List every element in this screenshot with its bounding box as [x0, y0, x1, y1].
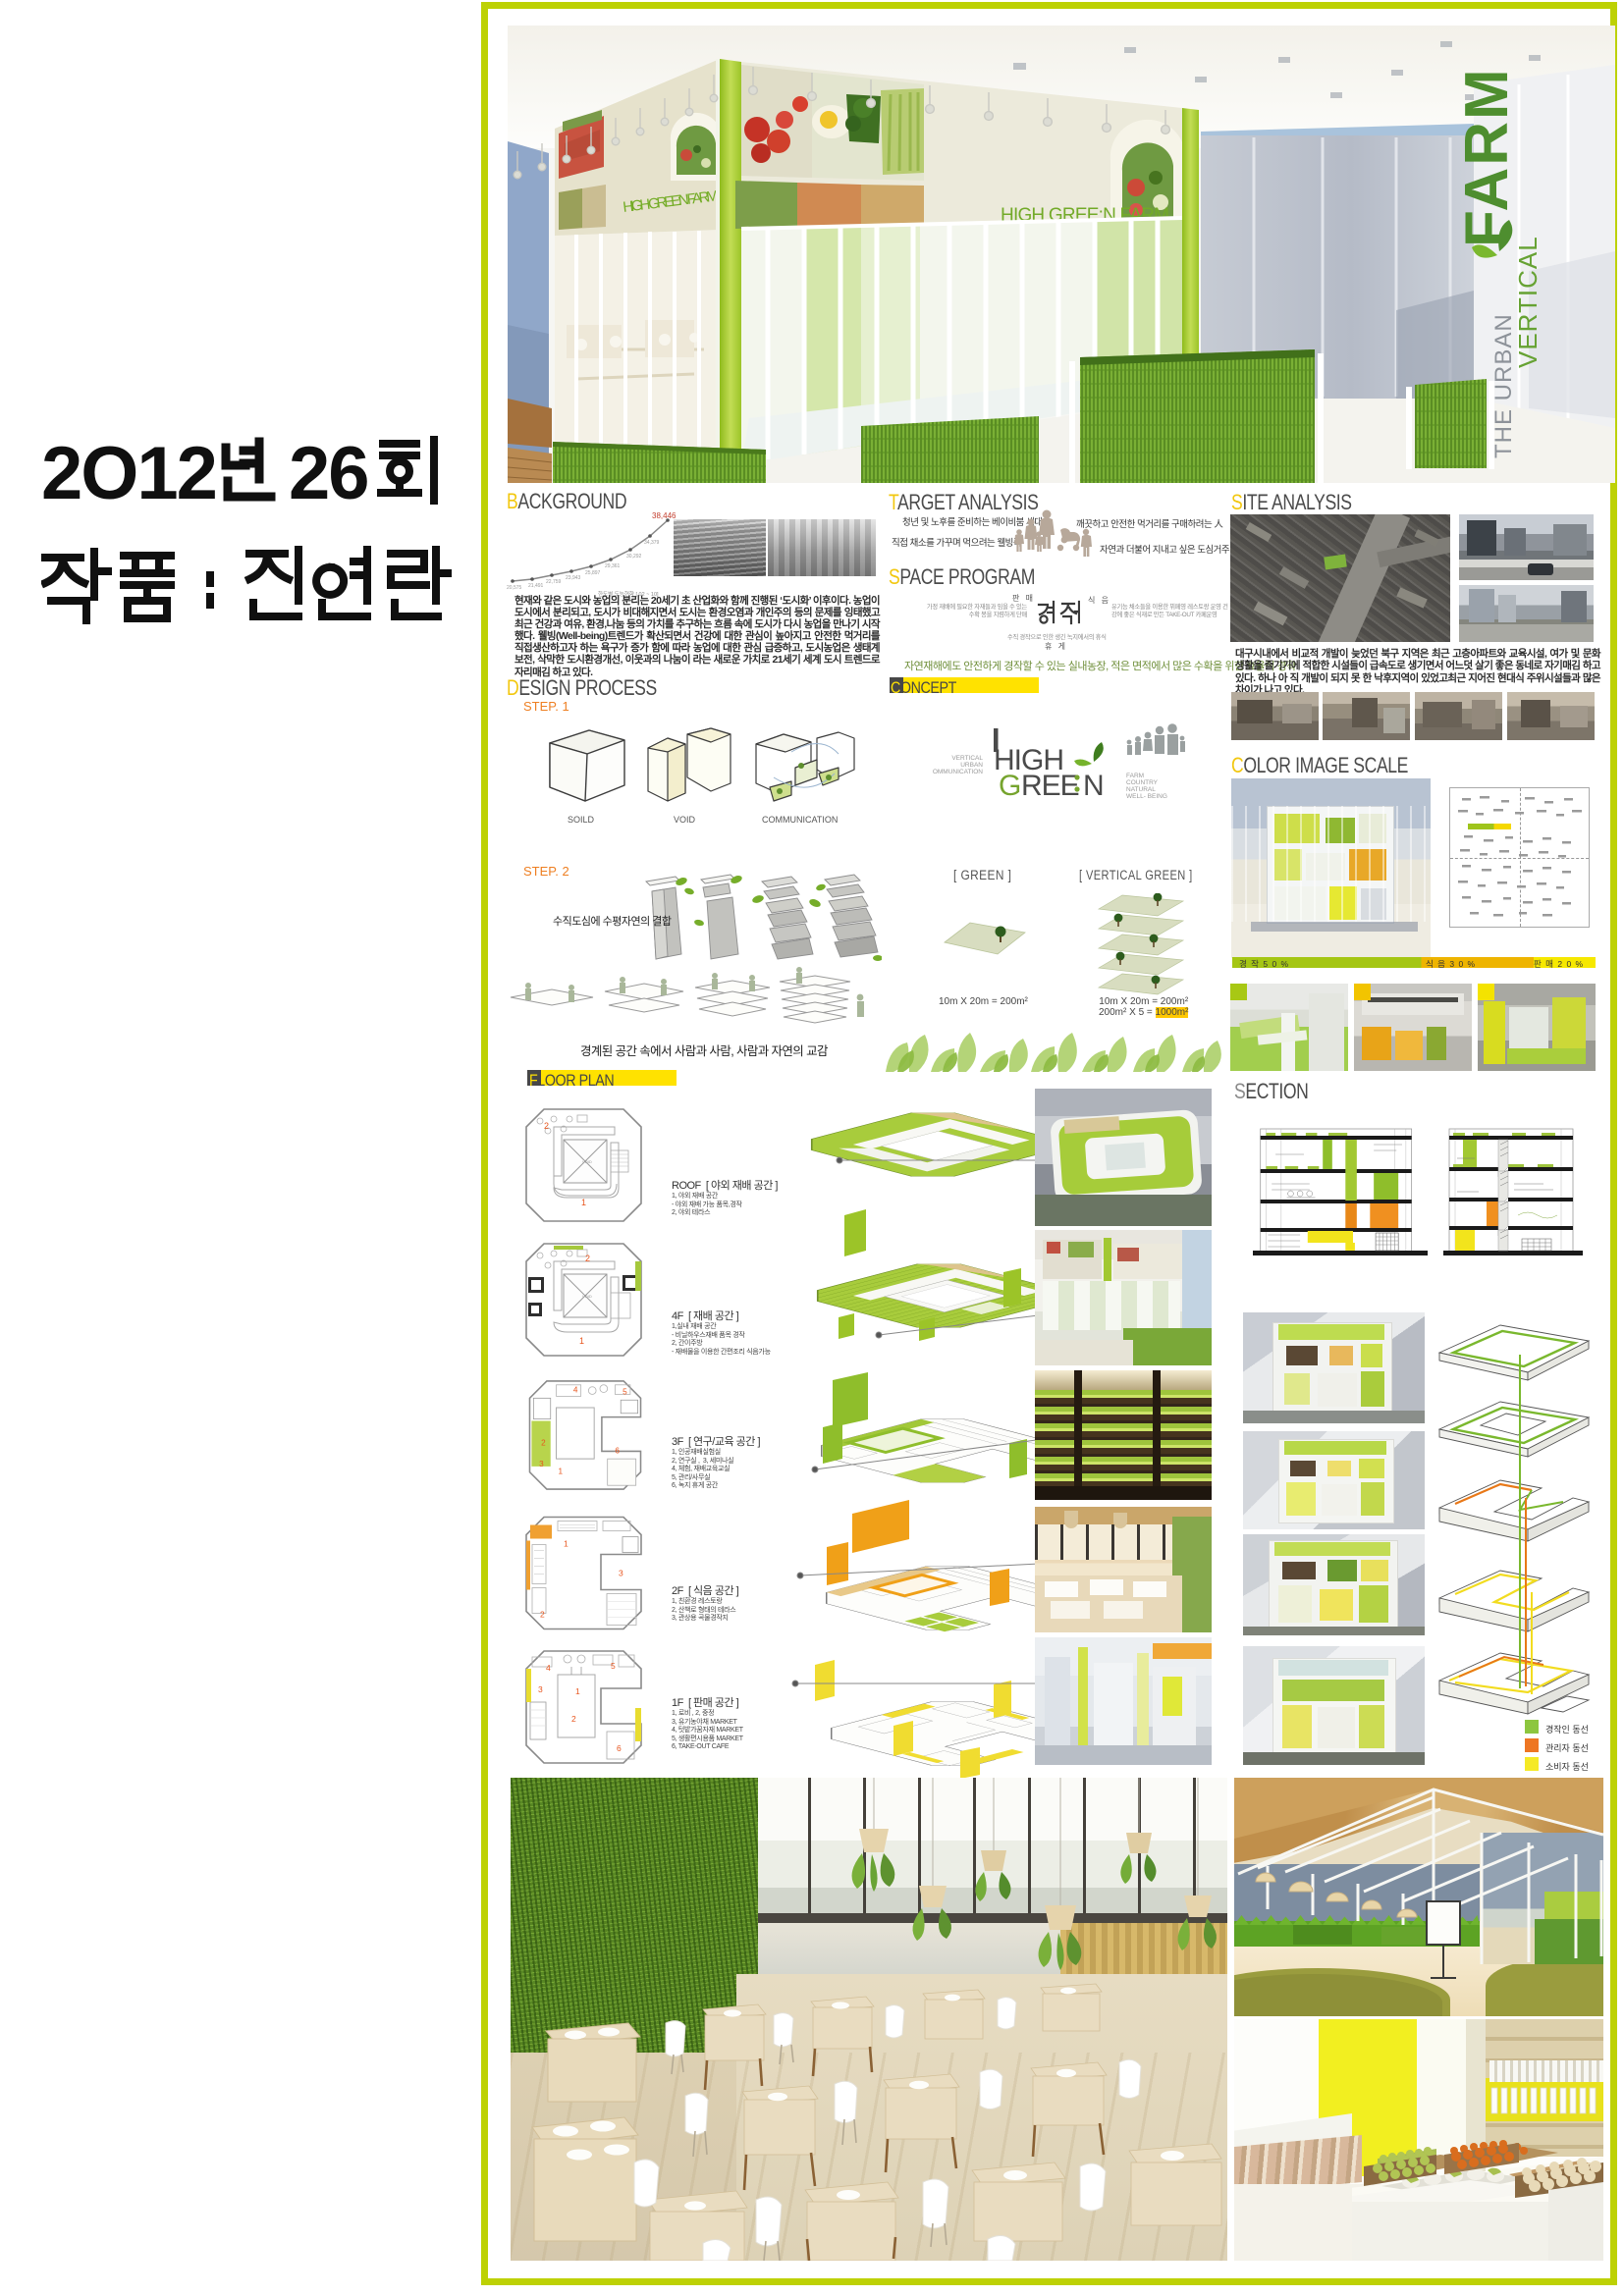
- svg-text:REE: REE: [1021, 770, 1079, 802]
- svg-text:N: N: [1083, 770, 1105, 802]
- svg-text:4: 4: [573, 1386, 578, 1395]
- svg-text:URBAN: URBAN: [960, 762, 983, 769]
- svg-text:FARM: FARM: [1126, 773, 1144, 779]
- svg-text:1: 1: [558, 1468, 563, 1476]
- svg-text:29,361: 29,361: [605, 563, 621, 569]
- svg-text:3: 3: [538, 1684, 543, 1694]
- svg-text:SOILD: SOILD: [568, 815, 595, 825]
- svg-text:FARM: FARM: [1453, 67, 1521, 247]
- svg-text:2: 2: [544, 1121, 549, 1131]
- svg-text:NATURAL: NATURAL: [1126, 786, 1156, 793]
- svg-text:5: 5: [623, 1387, 627, 1396]
- svg-text:3: 3: [539, 1460, 544, 1468]
- svg-text:4: 4: [546, 1663, 551, 1673]
- svg-text:1: 1: [564, 1539, 568, 1549]
- svg-text:2O12: 2O12: [41, 432, 216, 510]
- svg-text:VERTICAL: VERTICAL: [951, 755, 983, 762]
- svg-text:3: 3: [619, 1569, 623, 1578]
- svg-text:2: 2: [571, 1714, 576, 1724]
- svg-text:COMMUNICATION: COMMUNICATION: [933, 769, 983, 775]
- svg-text:G: G: [999, 770, 1021, 802]
- svg-text:1: 1: [575, 1686, 580, 1696]
- svg-text:VOID: VOID: [582, 1294, 592, 1299]
- svg-text:5: 5: [611, 1661, 616, 1671]
- svg-text:23,943: 23,943: [566, 575, 581, 581]
- svg-text:1: 1: [579, 1336, 584, 1346]
- svg-text:VERTICAL: VERTICAL: [1513, 236, 1543, 368]
- svg-text:21,491: 21,491: [528, 583, 544, 589]
- svg-text:20,575: 20,575: [507, 585, 522, 591]
- svg-text:25,897: 25,897: [585, 570, 601, 576]
- svg-text:2: 2: [541, 1439, 546, 1448]
- svg-text:VOID: VOID: [582, 1159, 592, 1164]
- svg-text:COMMUNICATION: COMMUNICATION: [762, 815, 838, 825]
- svg-text:VOID: VOID: [674, 815, 696, 825]
- svg-text:34,379: 34,379: [644, 540, 660, 546]
- svg-text:WELL- BEING: WELL- BEING: [1126, 793, 1167, 800]
- svg-text:26: 26: [289, 432, 368, 510]
- svg-text:30,292: 30,292: [626, 554, 642, 560]
- svg-text:2: 2: [540, 1610, 545, 1620]
- svg-text:2: 2: [585, 1254, 590, 1263]
- svg-text:COUNTRY: COUNTRY: [1126, 779, 1159, 786]
- svg-text:1: 1: [581, 1198, 586, 1207]
- svg-text:22,759: 22,759: [546, 579, 562, 585]
- svg-text:6: 6: [617, 1743, 622, 1753]
- svg-text:6: 6: [615, 1446, 620, 1455]
